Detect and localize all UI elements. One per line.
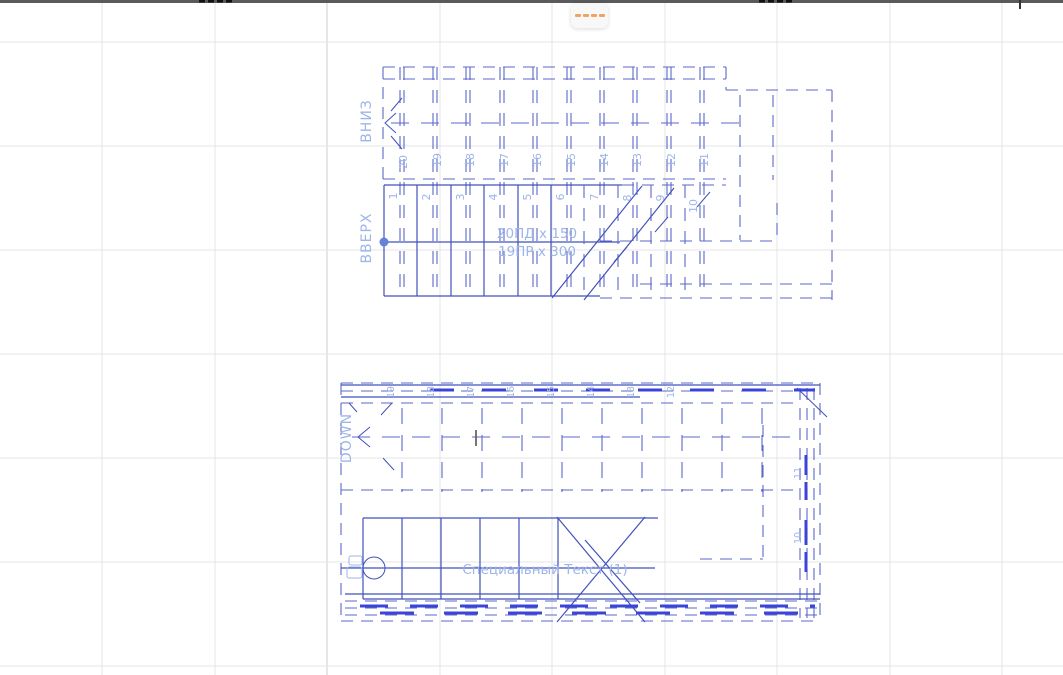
riser-number: 14	[598, 153, 611, 167]
riser-number: 10	[793, 532, 804, 544]
riser-number: 3	[454, 194, 467, 201]
riser-number: 19	[386, 386, 397, 398]
bottom-stair-plan[interactable]: DOWN Специальный Текст (1) 19 18 17 16 1…	[339, 383, 827, 622]
riser-number: 6	[554, 194, 567, 201]
riser-number: 17	[498, 153, 511, 167]
lower-flight-solid	[341, 385, 820, 622]
riser-number: 15	[565, 153, 578, 167]
riser-number: 12	[666, 386, 677, 398]
riser-number: 11	[698, 153, 711, 167]
canvas-handle[interactable]	[571, 3, 608, 28]
canvas-viewport[interactable]: ВНИЗ ВВЕРХ 20ПД x 150 19ПР x 300 1 2 3 4…	[0, 0, 1063, 675]
riser-number: 16	[531, 153, 544, 167]
riser-number: 9	[654, 195, 667, 202]
riser-number: 13	[626, 386, 637, 398]
label-vniz: ВНИЗ	[359, 99, 375, 143]
annotation-line2: 19ПР x 300	[498, 244, 576, 260]
annotation-line1: 20ПД x 150	[497, 226, 577, 242]
special-text-note[interactable]: Специальный Текст (1)	[462, 562, 627, 578]
top-chrome	[0, 0, 1063, 9]
riser-number: 2	[420, 194, 433, 201]
dashes-icon	[575, 14, 605, 17]
stair-tag-icon[interactable]	[347, 567, 362, 578]
riser-numbers-upper: 20 19 18 17 16 15 14 13 12 11	[397, 153, 711, 169]
riser-number: 12	[665, 153, 678, 167]
riser-numbers-top: 19 18 17 16 15 14 13 12	[386, 386, 677, 398]
riser-number: 14	[586, 386, 597, 398]
drawing-canvas[interactable]: ВНИЗ ВВЕРХ 20ПД x 150 19ПР x 300 1 2 3 4…	[0, 0, 1063, 675]
riser-number: 4	[487, 194, 500, 201]
cropped-toolbar-divider	[1019, 0, 1021, 9]
break-line	[552, 186, 674, 300]
top-stair-plan[interactable]: ВНИЗ ВВЕРХ 20ПД x 150 19ПР x 300 1 2 3 4…	[359, 67, 832, 300]
riser-number: 19	[431, 153, 444, 167]
riser-number: 8	[621, 195, 634, 202]
upper-flight-dashed	[383, 67, 832, 300]
stair-tag-icon[interactable]	[349, 556, 362, 565]
riser-numbers-right: 11 10	[793, 467, 804, 544]
riser-number: 17	[466, 386, 477, 398]
riser-number: 18	[464, 153, 477, 167]
riser-number: 11	[793, 467, 804, 479]
stair-node-dot[interactable]	[380, 238, 389, 247]
label-down: DOWN	[339, 413, 355, 463]
riser-number: 13	[631, 153, 644, 167]
riser-number: 7	[588, 194, 601, 201]
riser-number: 15	[546, 386, 557, 398]
stair-annotation[interactable]: 20ПД x 150 19ПР x 300	[497, 226, 577, 260]
window-top-border	[0, 0, 1063, 3]
stair-outline-dashed	[341, 383, 827, 621]
riser-numbers-lower: 1 2 3 4 5 6 7 8 9 10	[387, 193, 700, 214]
riser-number: 16	[506, 386, 517, 398]
highlighted-edges	[360, 390, 815, 613]
label-vverh: ВВЕРХ	[359, 212, 375, 263]
riser-number: 18	[426, 386, 437, 398]
riser-number: 20	[397, 155, 410, 169]
riser-number: 5	[521, 194, 534, 201]
riser-number: 10	[687, 199, 700, 213]
riser-number: 1	[387, 193, 400, 200]
